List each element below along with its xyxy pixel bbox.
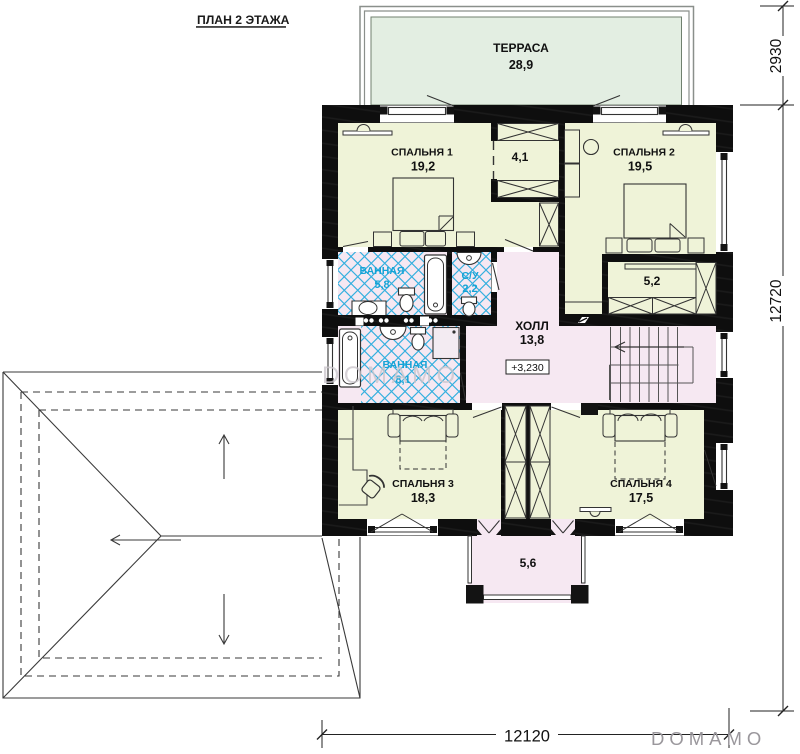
svg-text:DOMAMO: DOMAMO	[651, 728, 766, 749]
svg-text:2,2: 2,2	[462, 283, 477, 295]
svg-text:17,5: 17,5	[629, 491, 653, 505]
svg-text:СПАЛЬНЯ 2: СПАЛЬНЯ 2	[613, 147, 675, 159]
svg-text:28,9: 28,9	[509, 58, 533, 72]
svg-text:С/У: С/У	[461, 270, 479, 282]
svg-text:5,2: 5,2	[644, 274, 661, 288]
svg-text:4,1: 4,1	[512, 150, 529, 164]
svg-text:ВАННАЯ: ВАННАЯ	[360, 265, 405, 277]
svg-text:19,2: 19,2	[411, 160, 435, 174]
svg-text:ПЛАН 2 ЭТАЖА: ПЛАН 2 ЭТАЖА	[197, 13, 290, 27]
svg-text:СПАЛЬНЯ 1: СПАЛЬНЯ 1	[391, 147, 453, 159]
svg-text:5,8: 5,8	[374, 279, 389, 291]
svg-text:19,5: 19,5	[628, 160, 652, 174]
svg-text:+3,230: +3,230	[511, 362, 544, 374]
svg-text:СПАЛЬНЯ 4: СПАЛЬНЯ 4	[610, 478, 672, 490]
svg-text:2930: 2930	[768, 38, 785, 73]
svg-text:5,6: 5,6	[520, 556, 537, 570]
svg-text:18,3: 18,3	[411, 491, 435, 505]
svg-text:13,8: 13,8	[520, 333, 544, 347]
svg-text:СПАЛЬНЯ 3: СПАЛЬНЯ 3	[392, 478, 454, 490]
svg-text:ТЕРРАСА: ТЕРРАСА	[493, 41, 549, 55]
svg-text:DOMAMO: DOMAMO	[322, 362, 460, 389]
svg-text:12720: 12720	[768, 279, 785, 322]
svg-text:ХОЛЛ: ХОЛЛ	[515, 319, 549, 333]
svg-text:12120: 12120	[504, 728, 550, 746]
